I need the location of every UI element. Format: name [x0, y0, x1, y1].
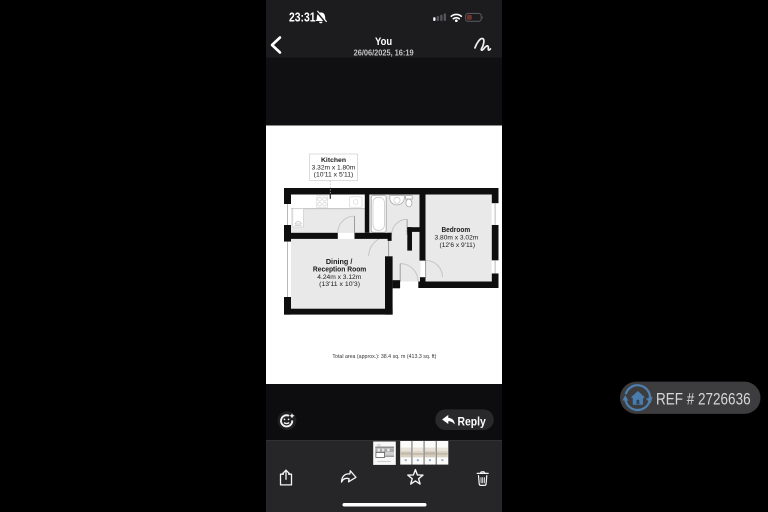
svg-text:(12'6 x 9'11): (12'6 x 9'11) [440, 242, 476, 249]
svg-text:Reply: Reply [458, 414, 486, 428]
svg-text:Kitchen: Kitchen [321, 157, 346, 164]
svg-text:You: You [375, 36, 392, 48]
svg-text:REF # 2726636: REF # 2726636 [656, 389, 751, 408]
svg-text:(13'11 x 10'3): (13'11 x 10'3) [319, 281, 360, 288]
svg-text:4.24m x 3.12m: 4.24m x 3.12m [317, 274, 361, 281]
svg-text:(10'11 x 5'11): (10'11 x 5'11) [314, 172, 354, 179]
svg-text:3.32m x 1.80m: 3.32m x 1.80m [312, 165, 356, 172]
svg-text:3.80m x 3.02m: 3.80m x 3.02m [435, 235, 479, 242]
svg-text:Reception Room: Reception Room [313, 267, 366, 274]
svg-text:Total area (approx.): 38.4 sq.: Total area (approx.): 38.4 sq. m (413.3 … [332, 354, 436, 360]
svg-text:26/06/2025, 16:19: 26/06/2025, 16:19 [354, 47, 414, 57]
svg-text:23:31: 23:31 [289, 10, 316, 24]
svg-text:Bedroom: Bedroom [441, 227, 470, 234]
svg-text:Dining /: Dining / [326, 259, 353, 266]
